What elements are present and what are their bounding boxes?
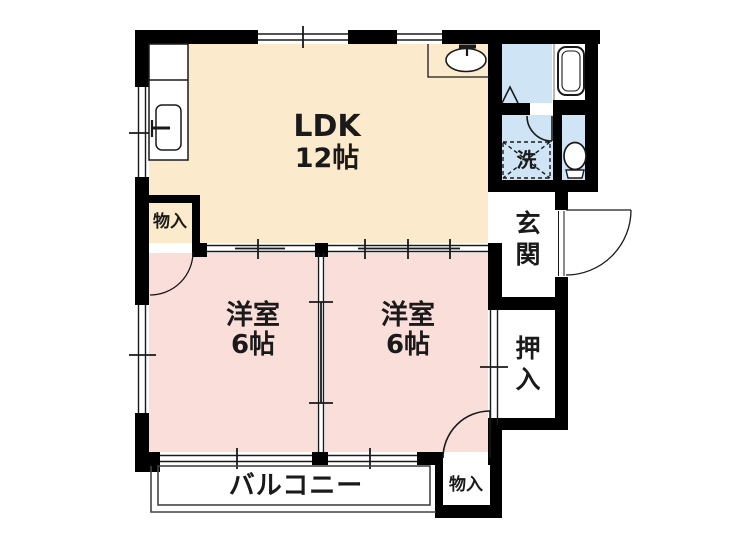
folding-door-bathroom xyxy=(502,87,518,103)
storage-upper-left-label: 物入 xyxy=(147,213,193,232)
closet-label: 押入 xyxy=(514,334,542,395)
door-arc-entrance xyxy=(559,210,632,276)
window-top-small xyxy=(397,34,442,40)
balcony-label: バルコニー xyxy=(216,472,376,501)
ldk-size: 12帖 xyxy=(252,144,402,174)
entrance-label: 玄関 xyxy=(514,209,542,270)
ldk-label: LDK 12帖 xyxy=(252,110,402,174)
ldk-name: LDK xyxy=(293,109,360,144)
bedroom-right-label: 洋室 6帖 xyxy=(333,301,483,360)
bedroom-right-size: 6帖 xyxy=(333,331,483,360)
bedroom-left-size: 6帖 xyxy=(178,331,328,360)
sliding-partition-ldk-left xyxy=(207,239,315,259)
bedroom-left-name: 洋室 xyxy=(226,300,280,331)
bedroom-left-label: 洋室 6帖 xyxy=(178,301,328,360)
bedroom-right-name: 洋室 xyxy=(381,300,435,331)
storage-lower-right-label: 物入 xyxy=(443,476,489,495)
washbasin-icon xyxy=(428,44,490,77)
window-left-bedroom xyxy=(129,305,156,413)
door-arc-bedroom-right xyxy=(443,411,490,458)
sliding-door-closet xyxy=(480,310,508,425)
window-top-large xyxy=(258,26,348,48)
floorplan-canvas: { "rooms": { "ldk": { "label": "LDK", "s… xyxy=(0,0,750,550)
door-arc-bedroom-left xyxy=(150,252,193,295)
bathtub-icon xyxy=(554,44,584,100)
sliding-partition-ldk-right xyxy=(328,239,488,259)
door-arc-washroom xyxy=(527,116,552,141)
kitchen-sink-icon xyxy=(149,44,188,160)
laundry-space-label: 洗 xyxy=(503,149,550,171)
toilet-icon xyxy=(564,143,586,179)
